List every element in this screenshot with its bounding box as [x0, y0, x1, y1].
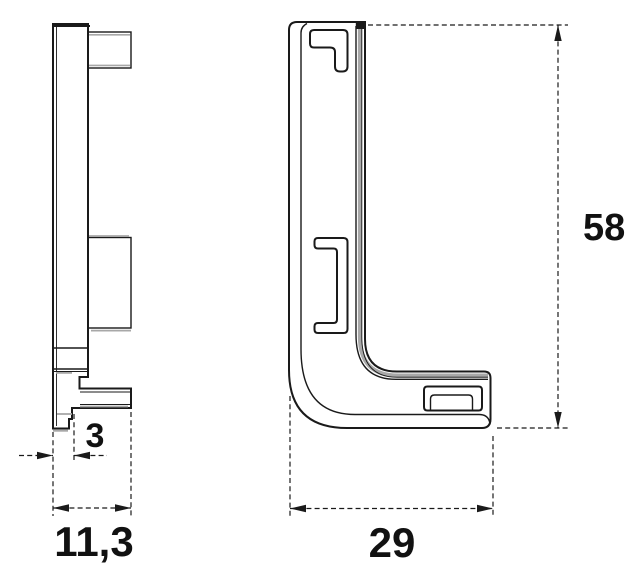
arrowhead	[554, 25, 561, 41]
arrowhead	[477, 505, 493, 512]
drawing-canvas: 3 11,3 29 58	[0, 0, 640, 571]
edge-band-line	[356, 26, 488, 379]
side-view	[52, 24, 131, 431]
dimension-58-label: 58	[583, 207, 625, 249]
technical-drawing: 3 11,3 29 58	[0, 0, 640, 571]
side-view-middle-tab	[88, 238, 131, 329]
front-view-inner-face-line	[301, 24, 490, 425]
dimension-11-3-label: 11,3	[54, 518, 133, 565]
arrowhead	[53, 504, 69, 511]
front-view-outline	[289, 22, 491, 428]
edge-band-line	[362, 27, 488, 377]
arrowhead	[290, 505, 306, 512]
arrowhead	[37, 452, 53, 459]
middle-bracket-cutout	[315, 238, 348, 333]
dimension-29-label: 29	[369, 519, 416, 566]
arrowhead	[115, 504, 131, 511]
front-view	[289, 22, 491, 428]
dimension-3-label: 3	[86, 417, 105, 455]
side-view-outline	[53, 24, 131, 429]
top-hook-cutout	[310, 30, 348, 72]
dimension-3: 3	[19, 414, 107, 462]
arrowhead	[554, 412, 561, 428]
dimension-29: 29	[290, 396, 493, 566]
bottom-staple-cutout-outer	[424, 387, 482, 411]
dimension-58: 58	[368, 25, 625, 428]
side-view-top-tab	[88, 32, 131, 68]
edge-band-shading	[360, 27, 488, 376]
top-edge-cap	[356, 22, 365, 29]
